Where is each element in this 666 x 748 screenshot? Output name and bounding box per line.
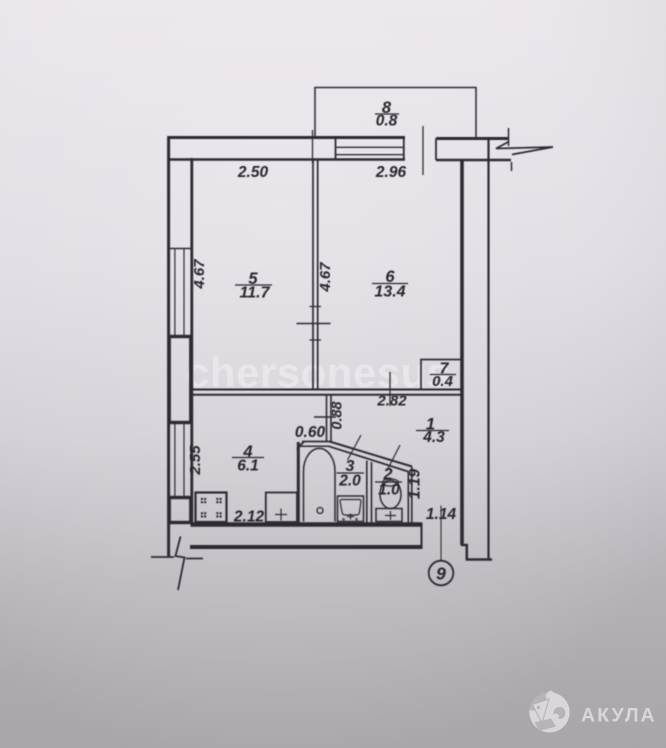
svg-text:0.88: 0.88 [330,400,346,429]
svg-text:1.0: 1.0 [378,482,400,499]
svg-text:4.67: 4.67 [191,259,208,290]
svg-text:2.55: 2.55 [187,445,204,476]
svg-text:0.8: 0.8 [376,113,398,130]
svg-text:6.1: 6.1 [237,458,259,475]
svg-text:2.0: 2.0 [338,473,361,490]
svg-text:0.60: 0.60 [295,424,326,441]
svg-text:2.96: 2.96 [375,164,407,181]
svg-text:1.14: 1.14 [426,506,457,523]
svg-text:2.12: 2.12 [233,509,265,526]
svg-text:2.50: 2.50 [237,164,269,181]
svg-text:1.19: 1.19 [407,469,424,500]
svg-text:4.3: 4.3 [422,429,445,446]
svg-text:АКУЛА: АКУЛА [581,705,657,727]
svg-text:9: 9 [436,564,446,584]
svg-text:0.4: 0.4 [432,373,454,390]
svg-text:11.7: 11.7 [240,285,271,302]
svg-text:2.82: 2.82 [376,393,407,410]
svg-text:13.4: 13.4 [374,284,405,301]
svg-text:4.67: 4.67 [317,262,334,293]
